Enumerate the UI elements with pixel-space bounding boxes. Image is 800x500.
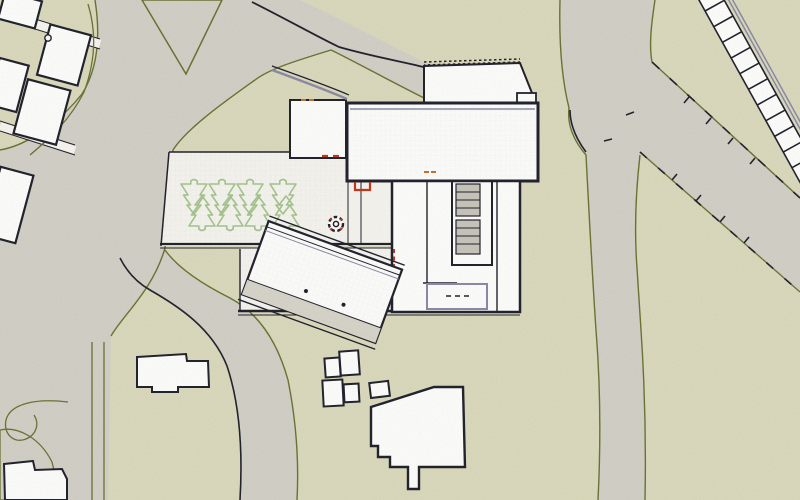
grain-overlay — [0, 0, 800, 500]
site-plan-canvas — [0, 0, 800, 500]
site-plan-image — [0, 0, 800, 500]
